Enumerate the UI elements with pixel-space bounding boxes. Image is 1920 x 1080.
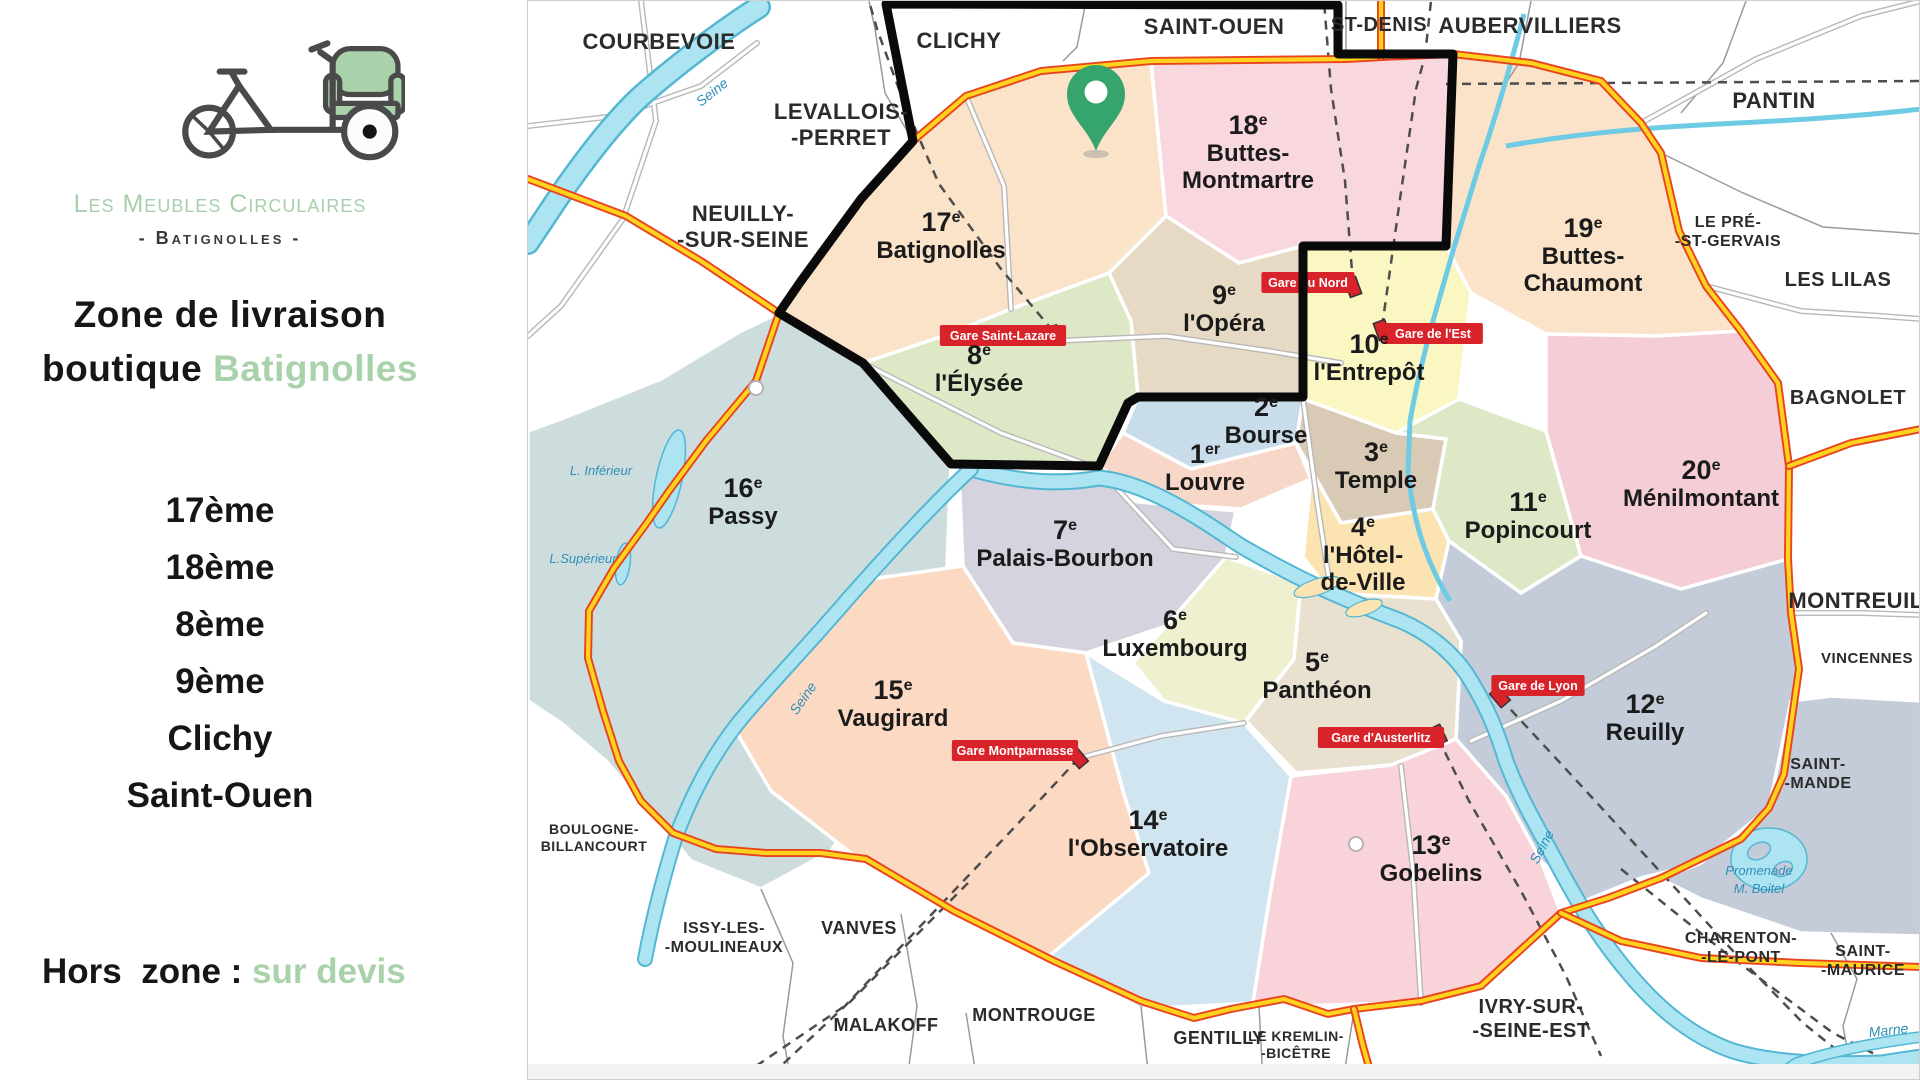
district-area-20: [1546, 331, 1789, 589]
gare-label: Gare d'Austerlitz: [1331, 731, 1431, 745]
suburb-label: VINCENNES: [1821, 650, 1913, 667]
water-label: L. Inférieur: [570, 463, 633, 478]
district-label-20: Ménilmontant: [1623, 485, 1779, 512]
gare-badge: Gare d'Austerlitz: [1318, 724, 1447, 748]
suburb-label: -LE-PONT: [1701, 949, 1781, 966]
district-label-9: l'Opéra: [1183, 310, 1265, 337]
title-line2-prefix: boutique: [42, 348, 213, 389]
suburb-label: -ST-GERVAIS: [1675, 233, 1781, 250]
paris-map: Gare Saint-LazareGare du NordGare de l'E…: [528, 1, 1919, 1064]
district-label-4: l'Hôtel-: [1323, 542, 1403, 569]
sidebar: Les Meubles Circulaires - Batignolles - …: [0, 0, 527, 1080]
title-line1: Zone de livraison: [0, 288, 460, 342]
water-label: M. Boitel: [1734, 881, 1786, 896]
suburb-label: MONTROUGE: [972, 1005, 1096, 1025]
suburb-label: SAINT-: [1790, 756, 1845, 773]
suburb-label: -MOULINEAUX: [665, 939, 783, 956]
page-title: Zone de livraison boutique Batignolles: [0, 288, 460, 396]
suburb-label: SAINT-: [1835, 943, 1890, 960]
district-label-13: Gobelins: [1380, 860, 1483, 887]
zone-item: Clichy: [0, 710, 440, 767]
water-label: Promenade: [1725, 863, 1792, 878]
zone-item: 18ème: [0, 539, 440, 596]
zone-item: 17ème: [0, 482, 440, 539]
suburb-label: PANTIN: [1732, 88, 1815, 113]
suburb-label: LEVALLOIS-: [774, 99, 908, 124]
suburb-label: -BICÊTRE: [1261, 1044, 1331, 1061]
suburb-label: NEUILLY-: [692, 201, 794, 226]
district-label-18: Montmartre: [1182, 167, 1314, 194]
district-label-15: Vaugirard: [838, 705, 949, 732]
district-label-16: Passy: [708, 503, 778, 530]
district-label-10: l'Entrepôt: [1313, 359, 1424, 386]
water-label: L.Supérieur: [549, 551, 617, 566]
gare-label: Gare de l'Est: [1395, 327, 1472, 341]
suburb-label: IVRY-SUR-: [1479, 996, 1584, 1018]
suburb-label: ISSY-LES-: [683, 920, 765, 937]
district-label-7: Palais-Bourbon: [976, 545, 1153, 572]
gare-badge: Gare Saint-Lazare: [940, 325, 1066, 346]
district-label-3: Temple: [1335, 467, 1417, 494]
zone-item: Saint-Ouen: [0, 767, 440, 824]
suburb-label: CLICHY: [917, 28, 1002, 53]
district-label-17: Batignolles: [876, 237, 1005, 264]
suburb-label: ST-DENIS: [1331, 14, 1427, 36]
suburb-label: BAGNOLET: [1790, 387, 1906, 409]
out-of-zone-label: Hors zone :: [42, 952, 252, 991]
district-label-19: Buttes-: [1542, 243, 1625, 270]
cargo-bike-armchair-logo: [105, 16, 405, 181]
gare-label: Gare Saint-Lazare: [950, 329, 1056, 343]
district-label-18: Buttes-: [1207, 140, 1290, 167]
pin-shadow: [1083, 150, 1109, 158]
title-line2-highlight: Batignolles: [213, 348, 418, 389]
suburb-label: COURBEVOIE: [583, 29, 736, 54]
title-line2: boutique Batignolles: [0, 342, 460, 396]
suburb-label: -SUR-SEINE: [677, 227, 809, 252]
suburb-label: BOULOGNE-: [549, 821, 639, 837]
bike-wheel-icon: [344, 106, 395, 157]
suburb-label: -MAURICE: [1821, 962, 1905, 979]
pin-hole: [1085, 81, 1108, 104]
brand-location: - Batignolles -: [0, 228, 440, 249]
suburb-label: BILLANCOURT: [541, 838, 648, 854]
district-label-14: l'Observatoire: [1068, 835, 1228, 862]
out-of-zone-value: sur devis: [252, 952, 406, 991]
suburb-label: AUBERVILLIERS: [1438, 13, 1621, 38]
suburb-label: LES LILAS: [1785, 269, 1892, 291]
brand-name: Les Meubles Circulaires: [0, 190, 440, 219]
suburb-label: MONTREUIL: [1788, 588, 1919, 613]
district-label-12: Reuilly: [1606, 719, 1685, 746]
district-label-4: de-Ville: [1321, 569, 1406, 596]
district-label-6: Luxembourg: [1102, 635, 1247, 662]
paris-map-frame: Gare Saint-LazareGare du NordGare de l'E…: [527, 0, 1920, 1080]
suburb-label: LE PRÉ-: [1695, 212, 1762, 231]
suburb-label: MALAKOFF: [834, 1015, 939, 1035]
out-of-zone-note: Hors zone : sur devis: [42, 952, 406, 992]
zone-list: 17ème 18ème 8ème 9ème Clichy Saint-Ouen: [0, 482, 440, 824]
zone-item: 9ème: [0, 653, 440, 710]
gare-label: Gare de Lyon: [1498, 679, 1577, 693]
district-label-5: Panthéon: [1262, 677, 1371, 704]
district-label-1: Louvre: [1165, 469, 1245, 496]
district-label-19: Chaumont: [1524, 270, 1643, 297]
suburb-label: -SEINE-EST: [1472, 1020, 1589, 1042]
district-label-8: l'Élysée: [935, 369, 1023, 397]
gare-label: Gare Montparnasse: [957, 744, 1074, 758]
suburb-label: GENTILLY: [1173, 1028, 1264, 1048]
district-area-18: [1151, 56, 1453, 263]
suburb-label: -MANDE: [1785, 775, 1852, 792]
suburb-label: CHARENTON-: [1685, 930, 1797, 947]
gare-label: Gare du Nord: [1268, 276, 1348, 290]
suburb-label: -PERRET: [791, 125, 891, 150]
district-label-11: Popincourt: [1465, 517, 1592, 544]
suburb-label: VANVES: [821, 918, 897, 938]
gare-badge: Gare de l'Est: [1373, 319, 1483, 344]
zone-item: 8ème: [0, 596, 440, 653]
district-label-2: Bourse: [1225, 422, 1308, 449]
suburb-label: SAINT-OUEN: [1144, 14, 1285, 39]
